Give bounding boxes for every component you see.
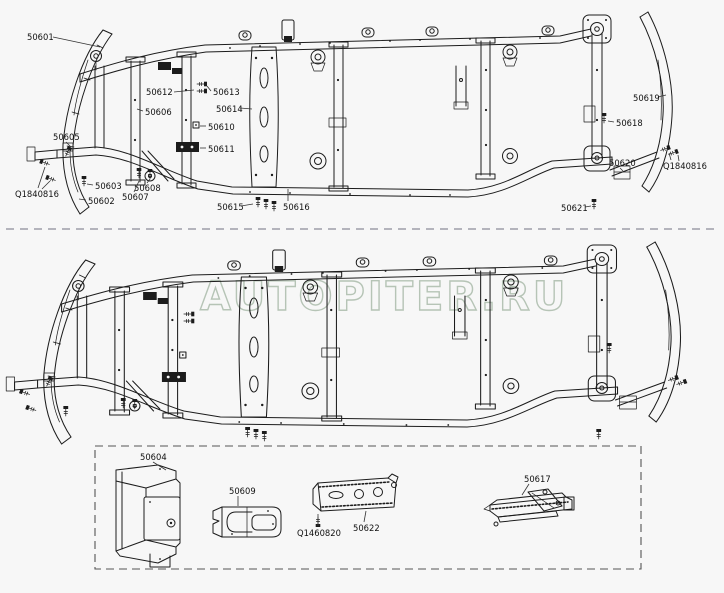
part-label-50607-12[interactable]: 50607 bbox=[122, 192, 149, 202]
part-label-50601-0[interactable]: 50601 bbox=[27, 32, 54, 42]
part-label-50613-2[interactable]: 50613 bbox=[213, 87, 240, 97]
part-label-50603-9[interactable]: 50603 bbox=[95, 181, 122, 191]
part-label-50604-20[interactable]: 50604 bbox=[140, 452, 167, 462]
part-label-50622-23[interactable]: 50622 bbox=[353, 523, 380, 533]
part-label-50602-10[interactable]: 50602 bbox=[88, 196, 115, 206]
part-label-50621-19[interactable]: 50621 bbox=[561, 203, 588, 213]
part-label-50606-3[interactable]: 50606 bbox=[145, 107, 172, 117]
part-label-Q1840816-8[interactable]: Q1840816 bbox=[15, 189, 59, 199]
part-label-Q1840816-18[interactable]: Q1840816 bbox=[663, 161, 707, 171]
part-label-50614-4[interactable]: 50614 bbox=[216, 104, 243, 114]
part-label-50620-17[interactable]: 50620 bbox=[609, 158, 636, 168]
part-label-Q1460820-22[interactable]: Q1460820 bbox=[297, 528, 341, 538]
part-label-50612-1[interactable]: 50612 bbox=[146, 87, 173, 97]
part-label-50617-24[interactable]: 50617 bbox=[524, 474, 551, 484]
part-label-50618-16[interactable]: 50618 bbox=[616, 118, 643, 128]
part-label-50609-21[interactable]: 50609 bbox=[229, 486, 256, 496]
part-label-50610-5[interactable]: 50610 bbox=[208, 122, 235, 132]
part-label-50616-14[interactable]: 50616 bbox=[283, 202, 310, 212]
part-label-50611-6[interactable]: 50611 bbox=[208, 144, 235, 154]
catalog-diagram-page: AUTOPITER.RU bbox=[0, 0, 724, 593]
part-label-50619-15[interactable]: 50619 bbox=[633, 93, 660, 103]
part-label-50605-7[interactable]: 50605 bbox=[53, 132, 80, 142]
part-label-50615-13[interactable]: 50615 bbox=[217, 202, 244, 212]
